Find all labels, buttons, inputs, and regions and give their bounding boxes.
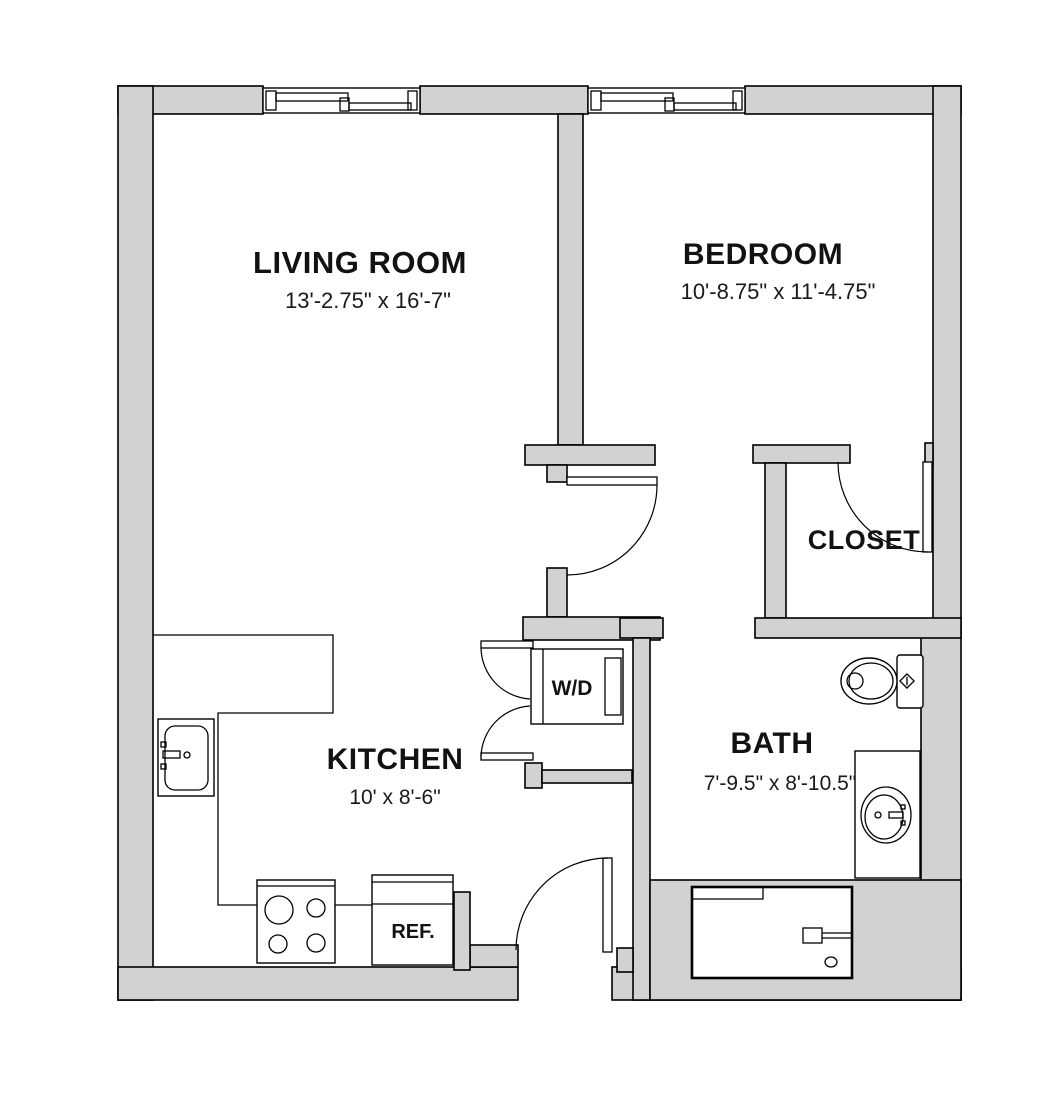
wd-door-leaf	[481, 753, 533, 760]
kitchen-label: KITCHEN	[327, 743, 464, 776]
entry-door-leaf	[603, 858, 612, 952]
refrigerator: REF.	[372, 875, 453, 965]
kitchen-sink	[158, 719, 214, 796]
washer-dryer-label: W/D	[552, 677, 593, 700]
bathtub	[692, 887, 852, 978]
living-room-label: LIVING ROOM	[253, 245, 467, 280]
closet-label: CLOSET	[808, 525, 921, 555]
washer-dryer: W/D	[531, 649, 623, 724]
toilet	[841, 655, 923, 708]
bedroom-door	[567, 477, 657, 575]
bath-label: BATH	[730, 727, 813, 760]
floor-plan-page: REF. W/D	[0, 0, 1064, 1097]
bedroom-label: BEDROOM	[683, 238, 843, 271]
bedroom-window	[588, 88, 745, 113]
kitchen-dimensions: 10' x 8'-6"	[349, 786, 440, 809]
stove	[257, 880, 335, 963]
refrigerator-label: REF.	[391, 921, 434, 943]
living-room-window	[263, 88, 420, 113]
living-room-dimensions: 13'-2.75" x 16'-7"	[285, 288, 451, 313]
closet-door-leaf	[923, 462, 932, 552]
bedroom-door-leaf	[567, 477, 657, 485]
floor-plan: REF. W/D	[0, 0, 1064, 1097]
bath-dimensions: 7'-9.5" x 8'-10.5"	[704, 772, 857, 795]
wd-door-leaf	[481, 641, 533, 648]
wd-bifold-doors	[481, 641, 533, 760]
bathroom-vanity-sink	[855, 751, 920, 878]
bedroom-dimensions: 10'-8.75" x 11'-4.75"	[681, 279, 876, 304]
entry-door	[516, 858, 612, 952]
